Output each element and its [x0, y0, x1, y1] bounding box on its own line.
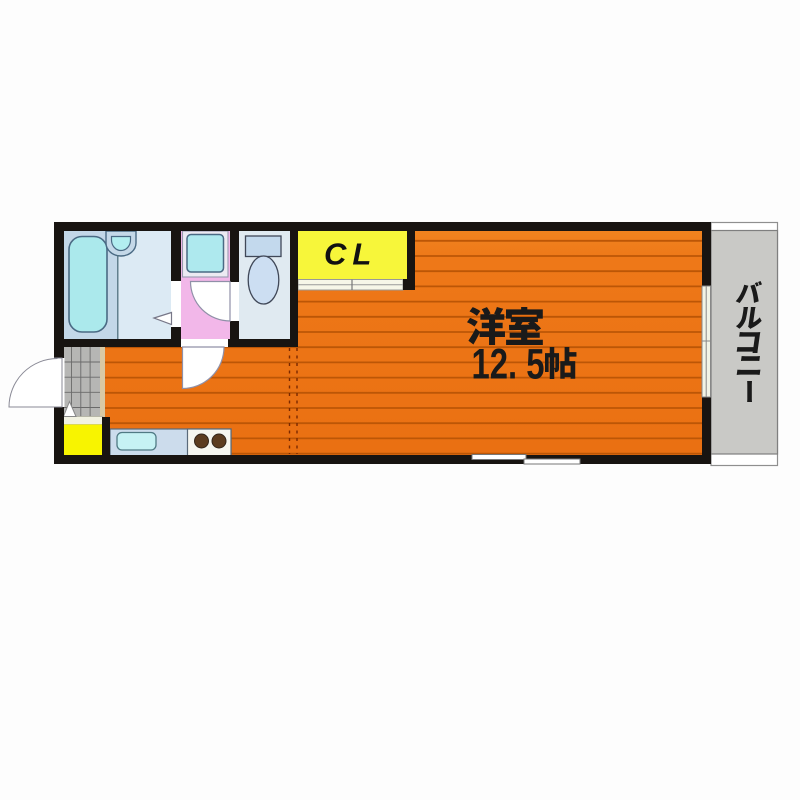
svg-text:12. 5: 12. 5	[472, 341, 545, 389]
svg-text:CL: CL	[324, 237, 377, 272]
